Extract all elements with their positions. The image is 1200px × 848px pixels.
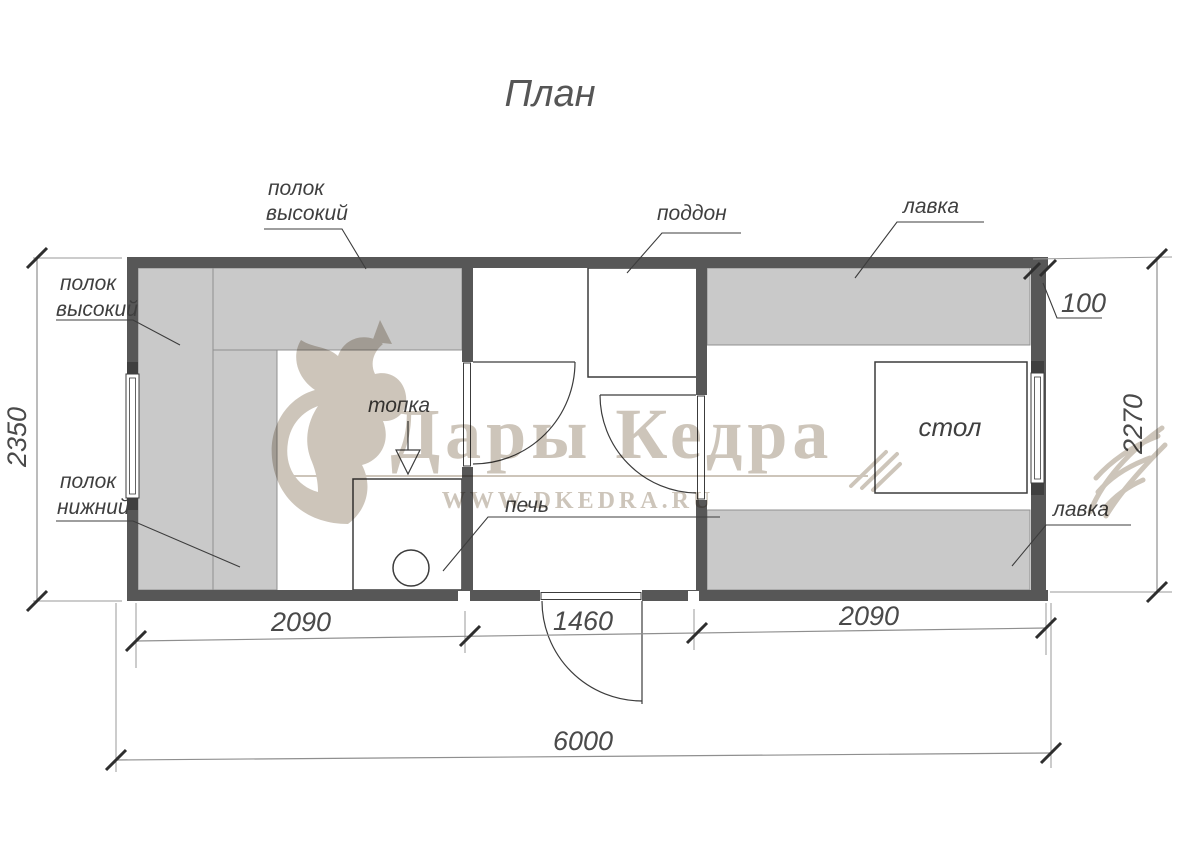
window-right [1031,373,1044,483]
dim-steam-width: 2090 [270,607,331,637]
bench-bottom-label: лавка [1052,498,1109,521]
shower-tray [588,268,698,377]
floor-plan-drawing: План стол [0,0,1200,848]
window-left [126,374,139,498]
dim-washing-width: 1460 [553,606,613,636]
wall-bottom-right [642,590,1048,601]
bench-top [707,268,1030,345]
shelf-high-left-label-1: полок [60,272,117,295]
tray-label: поддон [657,202,727,225]
page-title: План [504,73,595,115]
shelf-left-band [138,268,213,590]
shelf-lower-step [213,350,277,590]
shelf-top-band [213,268,462,350]
shelf-low-label-1: полок [60,470,117,493]
entrance-leaf [541,593,641,600]
shelf-low-label-2: нижний [57,496,130,519]
window-right-jamb-bottom [1031,483,1044,495]
shelf-high-left-label-2: высокий [56,298,138,321]
dim-left-height: 2350 [2,407,32,468]
wall-joint-gap-1 [458,591,470,611]
window-left-jamb-top [127,362,138,374]
wall-joint-gap-2 [688,591,699,609]
bench-top-label: лавка [902,195,959,218]
ext-2270-top [1033,257,1172,259]
bench-bottom [707,510,1030,590]
dim-rest-width: 2090 [838,601,899,631]
wall-top [127,257,1048,268]
dim-total-width: 6000 [553,726,613,756]
shelf-high-top-label-1: полок [268,177,325,200]
wall-bottom-left [127,590,540,601]
window-right-jamb-top [1031,361,1044,373]
watermark-website: WWW.DKEDRA.RU [442,488,714,514]
shelf-high-top-label-2: высокий [266,202,348,225]
stove-burner-circle [393,550,429,586]
watermark-brand: Дары Кедра [391,394,834,474]
table-label: стол [919,412,982,442]
dim-wall-thickness: 100 [1061,288,1106,318]
stove-leader [443,517,720,571]
floor-plan-page: План стол [0,0,1200,848]
